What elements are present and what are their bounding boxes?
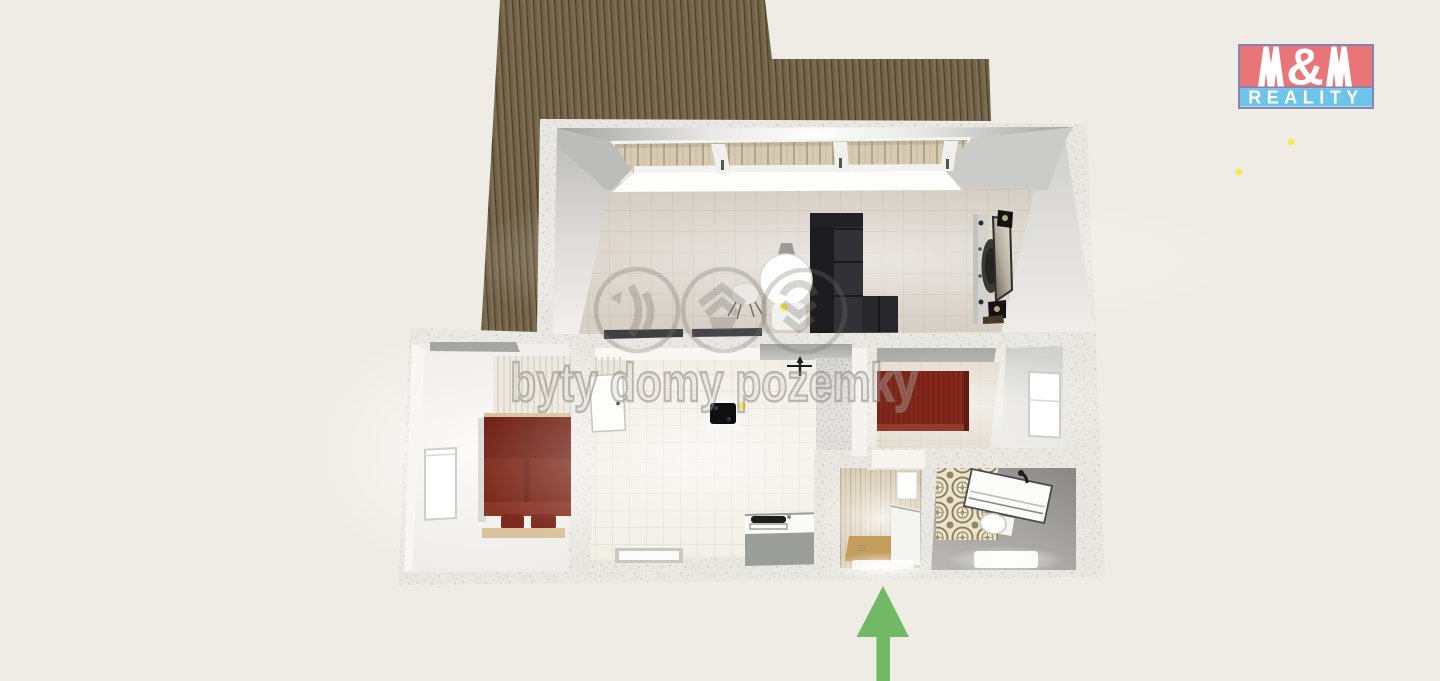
svg-text:REALITY: REALITY: [1248, 88, 1364, 108]
svg-text:byty domy pozemky: byty domy pozemky: [510, 353, 918, 413]
